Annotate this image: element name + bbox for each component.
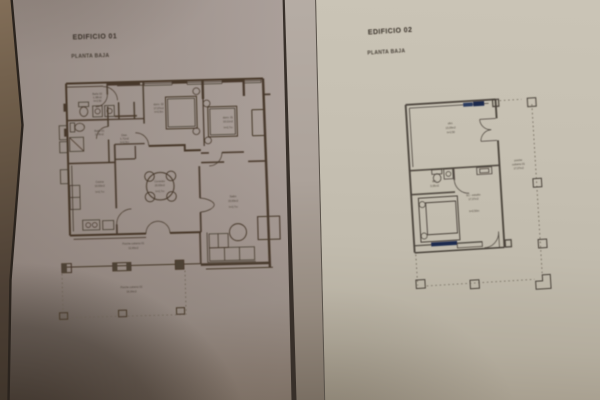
svg-text:Porche cubierto 02: Porche cubierto 02 — [120, 285, 142, 290]
svg-text:Porche cubierto 01: Porche cubierto 01 — [122, 241, 144, 246]
svg-text:Cocina: Cocina — [96, 180, 105, 184]
svg-text:17,37m2: 17,37m2 — [468, 197, 479, 202]
svg-text:h=2,50: h=2,50 — [447, 130, 456, 135]
svg-text:17,07m2: 17,07m2 — [514, 166, 525, 171]
svg-text:ofici.: ofici. — [448, 121, 454, 125]
svg-text:17,07m2: 17,07m2 — [154, 106, 165, 110]
svg-text:16,34m2: 16,34m2 — [126, 289, 137, 293]
svg-text:EDIFICIO 02: EDIFICIO 02 — [368, 27, 413, 37]
svg-text:dorm. 02: dorm. 02 — [153, 102, 164, 106]
svg-text:h=2,7m: h=2,7m — [95, 190, 104, 194]
svg-text:WC: WC — [432, 179, 437, 183]
svg-text:3,78m2: 3,78m2 — [95, 132, 104, 136]
svg-text:dorm. 01: dorm. 01 — [223, 115, 234, 119]
svg-text:h=2,7m: h=2,7m — [229, 205, 238, 209]
svg-text:Comedor: Comedor — [154, 179, 165, 183]
svg-text:12,46m2: 12,46m2 — [128, 246, 139, 250]
svg-text:porche: porche — [514, 158, 523, 163]
svg-text:20,93m2: 20,93m2 — [155, 183, 166, 187]
svg-text:h=2,50: h=2,50 — [93, 98, 102, 102]
svg-text:10,93m2: 10,93m2 — [95, 184, 106, 188]
svg-text:h=2,50m: h=2,50m — [469, 209, 479, 214]
svg-text:h=2,5m: h=2,5m — [154, 110, 163, 114]
svg-text:h=2,7m: h=2,7m — [155, 189, 164, 193]
svg-text:EDIFICIO 01: EDIFICIO 01 — [73, 33, 118, 41]
svg-text:cubierto 01: cubierto 01 — [512, 162, 526, 167]
svg-text:PLANTA BAJA: PLANTA BAJA — [71, 53, 109, 60]
svg-text:13,09m2: 13,09m2 — [445, 125, 456, 130]
svg-text:h=2,5m: h=2,5m — [120, 140, 129, 144]
svg-text:3,05m2: 3,05m2 — [430, 183, 439, 188]
svg-text:h=2,7m: h=2,7m — [224, 125, 233, 129]
svg-text:10,11m2: 10,11m2 — [223, 119, 234, 123]
svg-text:PLANTA BAJA: PLANTA BAJA — [367, 48, 405, 56]
svg-text:Salón: Salón — [230, 194, 237, 198]
svg-text:15,69m2: 15,69m2 — [228, 199, 239, 203]
